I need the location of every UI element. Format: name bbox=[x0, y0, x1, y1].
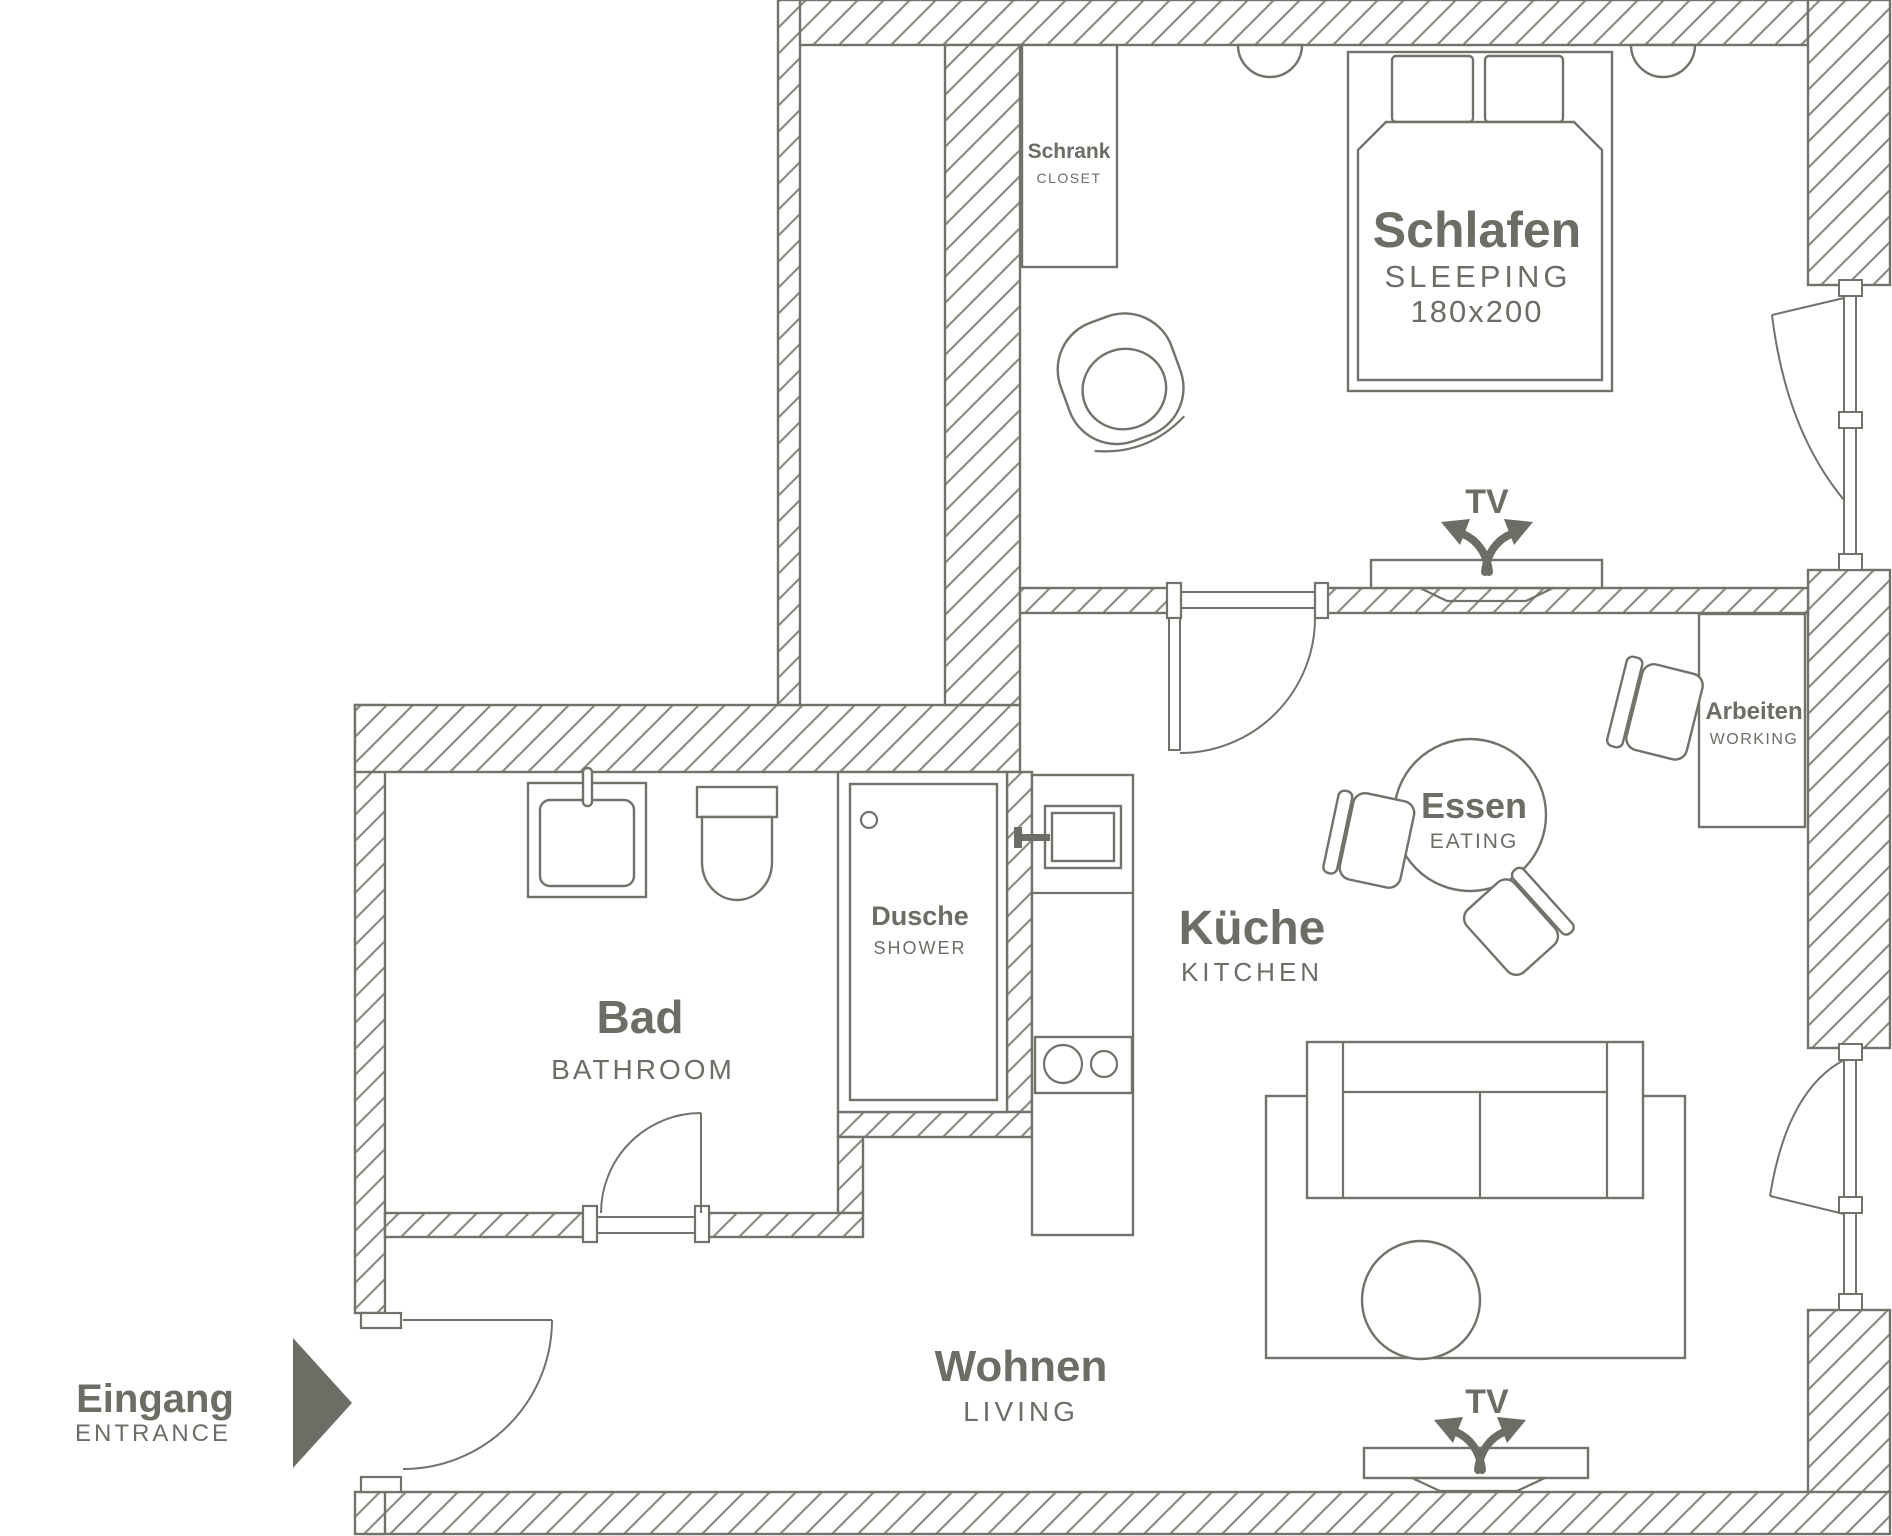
coffee-table bbox=[1362, 1241, 1480, 1359]
label-eating-de: Essen bbox=[1421, 785, 1527, 826]
sofa-body bbox=[1307, 1042, 1643, 1198]
wall-shower-left-lower bbox=[838, 1137, 863, 1213]
bedroom bbox=[1022, 45, 1695, 601]
desk-chair bbox=[1606, 655, 1706, 764]
label-living-de: Wohnen bbox=[935, 1342, 1108, 1391]
bathroom-door-post-left bbox=[583, 1206, 597, 1242]
wall-bottom bbox=[370, 1492, 1890, 1534]
wall-shower-right bbox=[1007, 772, 1032, 1112]
tv-sideboard-living-foot bbox=[1412, 1478, 1545, 1491]
label-sleeping-de: Schlafen bbox=[1373, 202, 1581, 258]
bedroom-window-leaf bbox=[1772, 298, 1844, 315]
label-closet-de: Schrank bbox=[1028, 140, 1111, 163]
bedroom-door-post-right bbox=[1315, 583, 1328, 618]
label-living-en: LIVING bbox=[963, 1396, 1079, 1427]
living-window-tab-bottom bbox=[1839, 1294, 1862, 1310]
wall-bathroom-bottom-right bbox=[709, 1213, 863, 1237]
wall-right-bottom bbox=[1808, 1310, 1890, 1494]
armchair bbox=[1044, 299, 1200, 464]
entrance-door-swing-arc bbox=[403, 1320, 552, 1469]
washbasin-inner bbox=[540, 800, 634, 886]
dining-chair-left bbox=[1322, 788, 1417, 890]
bathroom-door-swing-arc bbox=[601, 1113, 701, 1213]
label-tv-living: TV bbox=[1465, 1383, 1509, 1421]
wall-left-below-door bbox=[355, 1492, 385, 1534]
label-closet-en: CLOSET bbox=[1036, 170, 1101, 186]
washbasin-faucet-icon bbox=[583, 768, 592, 806]
label-sleeping-en: SLEEPING bbox=[1384, 259, 1571, 294]
bedroom-door-post-left bbox=[1167, 583, 1181, 618]
toilet-bowl bbox=[702, 817, 772, 900]
label-sleeping-size: 180x200 bbox=[1411, 294, 1544, 329]
label-kitchen-en: KITCHEN bbox=[1181, 957, 1323, 987]
wall-kitchen-top-left bbox=[1020, 588, 1168, 613]
living-window-tab-mid bbox=[1839, 1197, 1862, 1213]
bedroom-door-leaf bbox=[1169, 618, 1180, 750]
bathroom-door-sill bbox=[597, 1217, 695, 1233]
wall-bathroom-bottom-left bbox=[385, 1213, 583, 1237]
label-shower-en: SHOWER bbox=[874, 938, 967, 958]
label-kitchen-de: Küche bbox=[1179, 902, 1326, 955]
wall-left-upper bbox=[355, 705, 385, 1313]
kitchen-sink-inner bbox=[1052, 813, 1114, 861]
entrance-door-post-bottom bbox=[361, 1477, 401, 1492]
label-entrance-en: ENTRANCE bbox=[75, 1420, 231, 1447]
wall-strip-left-of-bedroom bbox=[778, 0, 800, 705]
bedroom-window-tab-top bbox=[1839, 280, 1862, 296]
wall-top bbox=[790, 0, 1808, 45]
pillow-right bbox=[1485, 56, 1563, 122]
wall-bedroom-left bbox=[945, 45, 1020, 705]
kitchen-faucet-base bbox=[1014, 827, 1022, 848]
label-entrance-de: Eingang bbox=[76, 1377, 234, 1421]
bedroom-door-swing-arc bbox=[1180, 618, 1315, 753]
living-window-leaf bbox=[1770, 1196, 1844, 1214]
bedroom-door-sill bbox=[1181, 592, 1315, 608]
kitchen-faucet-icon bbox=[1018, 834, 1050, 841]
bedroom-window-tab-bottom bbox=[1839, 554, 1862, 570]
wall-under-shower bbox=[838, 1112, 1032, 1137]
label-working-en: WORKING bbox=[1710, 731, 1799, 748]
wall-lamp-right bbox=[1631, 45, 1695, 77]
entrance-arrow-icon bbox=[293, 1338, 352, 1468]
wall-kitchen-top-right bbox=[1327, 588, 1808, 613]
label-bathroom-de: Bad bbox=[597, 991, 684, 1043]
wall-bathroom-top bbox=[355, 705, 1020, 772]
living-window-swing-arc bbox=[1770, 1060, 1844, 1196]
living-window-glazing bbox=[1844, 1048, 1856, 1310]
bedroom-window-tab-mid bbox=[1839, 412, 1862, 428]
label-tv-bedroom: TV bbox=[1465, 483, 1509, 521]
floor-plan: Schlafen SLEEPING 180x200 Schrank CLOSET… bbox=[0, 0, 1892, 1536]
toilet-tank bbox=[697, 787, 777, 817]
label-working-de: Arbeiten bbox=[1705, 698, 1802, 725]
pillow-left bbox=[1392, 56, 1473, 122]
label-eating-en: EATING bbox=[1430, 830, 1519, 853]
floor-plan-canvas: Schlafen SLEEPING 180x200 Schrank CLOSET… bbox=[0, 0, 1892, 1536]
entrance-door-post-top bbox=[361, 1313, 401, 1328]
wall-right-middle bbox=[1808, 570, 1890, 1048]
wall-top-right-corner bbox=[1808, 0, 1890, 285]
living-window-tab-top bbox=[1839, 1044, 1862, 1060]
living-room bbox=[1266, 1042, 1685, 1491]
label-bathroom-en: BATHROOM bbox=[551, 1054, 735, 1085]
label-shower-de: Dusche bbox=[871, 901, 969, 931]
wall-lamp-left bbox=[1238, 45, 1302, 77]
bedroom-window-swing-arc bbox=[1772, 315, 1844, 500]
